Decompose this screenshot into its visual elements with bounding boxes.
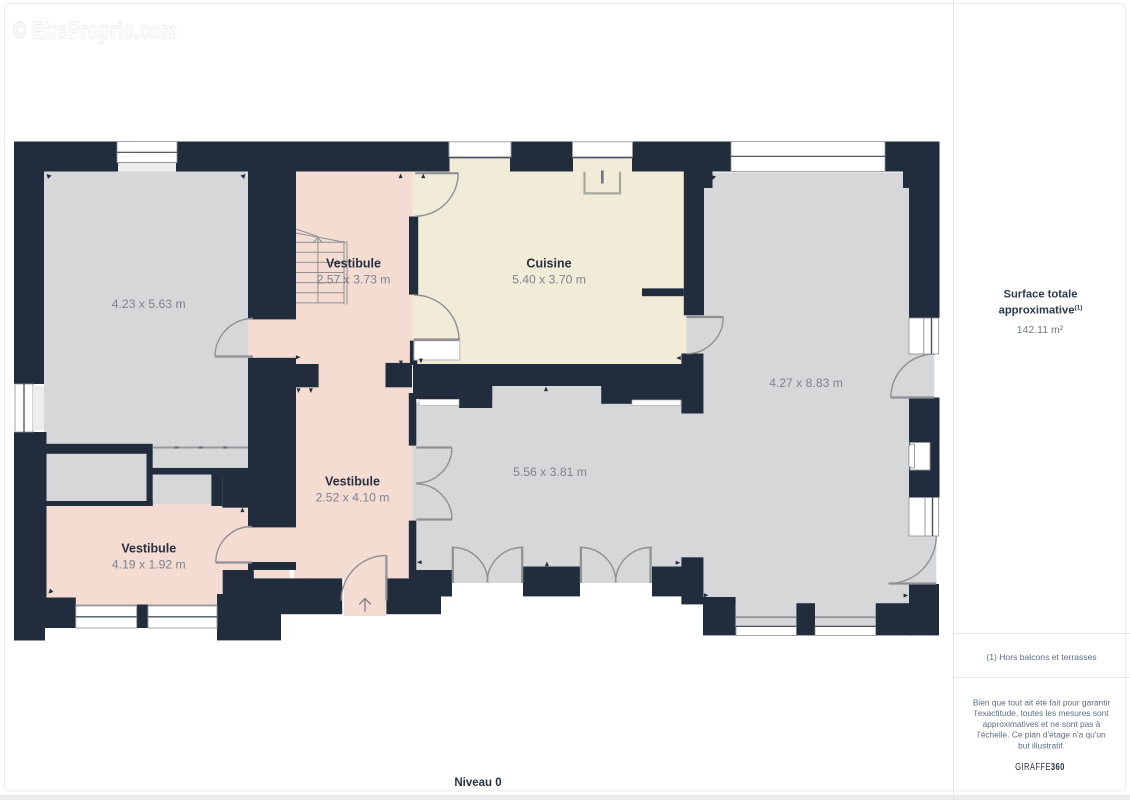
svg-text:5.56 x 3.81 m: 5.56 x 3.81 m [513, 465, 587, 479]
svg-text:Surface totale: Surface totale [1004, 288, 1078, 300]
svg-text:Bien que tout ait été fait pou: Bien que tout ait été fait pour garantir [973, 698, 1111, 708]
svg-text:2.57 x 3.73 m: 2.57 x 3.73 m [317, 273, 391, 287]
svg-text:4.23 x 5.63 m: 4.23 x 5.63 m [112, 297, 186, 311]
svg-text:Vestibule: Vestibule [121, 542, 176, 556]
svg-text:4.27 x 8.83 m: 4.27 x 8.83 m [769, 376, 843, 390]
svg-text:Vestibule: Vestibule [325, 475, 380, 489]
svg-text:Vestibule: Vestibule [326, 257, 381, 271]
svg-text:approximative(1): approximative(1) [999, 305, 1083, 317]
svg-text:© EtreProprio.com: © EtreProprio.com [13, 17, 177, 44]
svg-text:GIRAFFE360: GIRAFFE360 [1015, 761, 1065, 772]
svg-text:Cuisine: Cuisine [526, 257, 571, 271]
svg-text:l'échelle. Ce plan d'étage n'a: l'échelle. Ce plan d'étage n'a qu'un [977, 730, 1106, 740]
svg-text:but illustratif.: but illustratif. [1018, 740, 1065, 750]
svg-text:142.11 m²: 142.11 m² [1017, 324, 1064, 336]
svg-text:(1) Hors balcons et terrasses: (1) Hors balcons et terrasses [986, 652, 1096, 662]
svg-text:l'exactitude, toutes les mesur: l'exactitude, toutes les mesures sont [974, 708, 1109, 718]
svg-text:approximatives et ne sont pas: approximatives et ne sont pas à [983, 719, 1101, 729]
svg-text:2.52 x 4.10 m: 2.52 x 4.10 m [316, 491, 390, 505]
svg-text:5.40 x 3.70 m: 5.40 x 3.70 m [512, 273, 586, 287]
svg-text:Niveau 0: Niveau 0 [454, 777, 501, 789]
svg-text:4.19 x 1.92 m: 4.19 x 1.92 m [112, 558, 186, 572]
